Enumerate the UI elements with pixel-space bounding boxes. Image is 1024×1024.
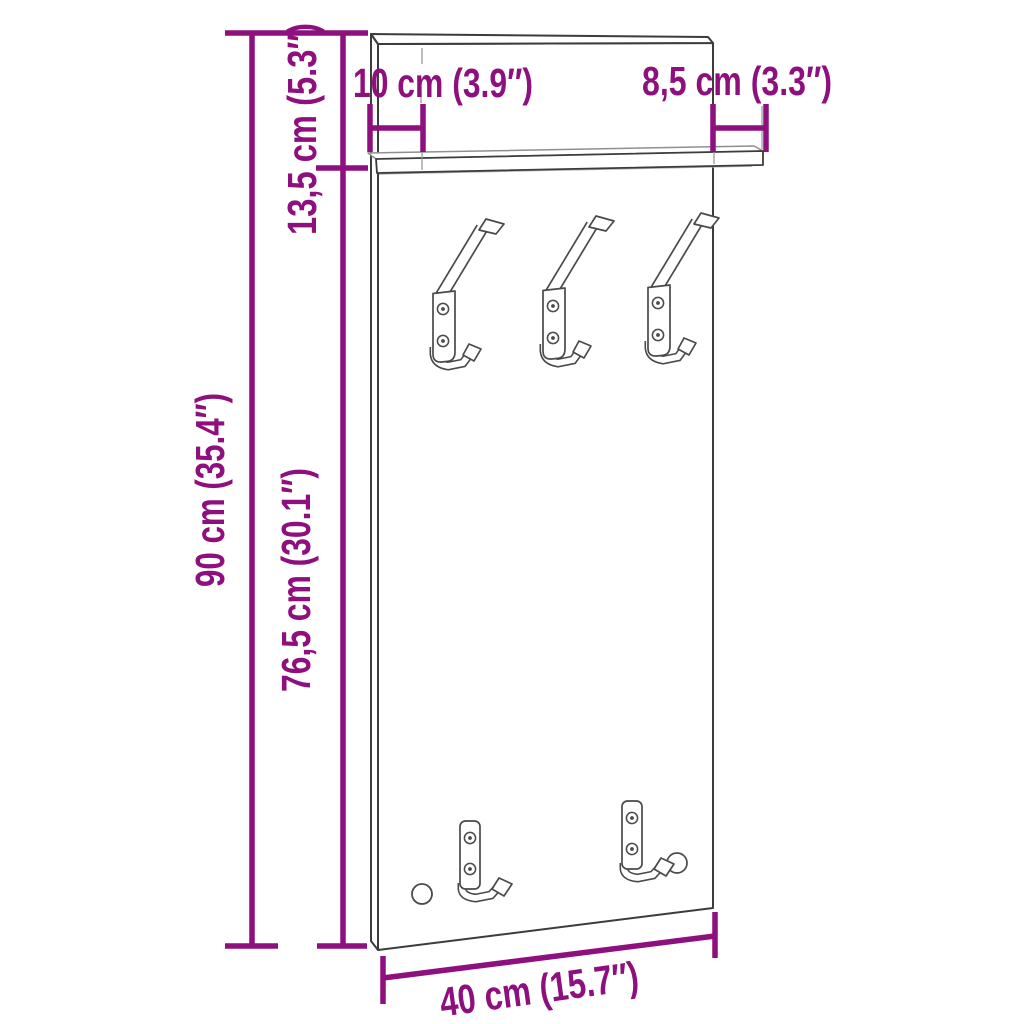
dim-label-top-right-width: 8,5 cm (3.3″) — [642, 58, 832, 104]
dim-label-upper-height: 13,5 cm (5.3″) — [279, 23, 325, 235]
dim-label-top-left-width: 10 cm (3.9″) — [353, 60, 533, 106]
dim-label-total-height: 90 cm (35.4″) — [187, 393, 233, 587]
panel-front-face — [378, 43, 713, 950]
dim-label-lower-height: 76,5 cm (30.1″) — [273, 468, 319, 692]
dimension-diagram-page: 10 cm (3.9″) 8,5 cm (3.3″) 13,5 cm (5.3″… — [0, 0, 1024, 1024]
dimension-diagram: 10 cm (3.9″) 8,5 cm (3.3″) 13,5 cm (5.3″… — [0, 0, 1024, 1024]
mounting-hole — [412, 884, 432, 904]
